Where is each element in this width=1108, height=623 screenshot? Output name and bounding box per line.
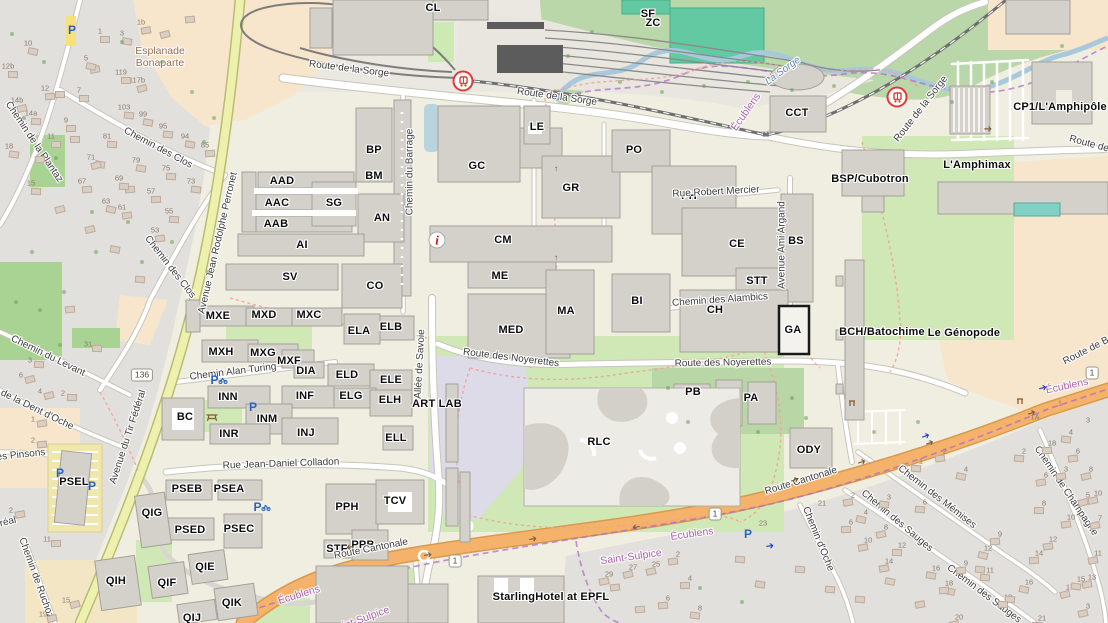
house-footprint	[645, 567, 656, 576]
boundary-label: Écublens	[1045, 376, 1090, 397]
tree-icon	[916, 420, 920, 424]
house-number: 117b	[129, 76, 145, 85]
oneway-arrow-icon: ➔	[789, 475, 800, 487]
tree-icon	[686, 420, 690, 424]
house-footprint	[911, 465, 921, 473]
tree-icon	[990, 80, 994, 84]
building-label: INF	[296, 390, 314, 402]
house-number: 1	[31, 415, 35, 424]
tree-icon	[566, 54, 570, 58]
building-label: STT	[746, 275, 767, 287]
house-footprint	[1080, 472, 1091, 481]
street-label: Chemin du Barrage	[405, 129, 416, 216]
building-label: AAB	[264, 218, 288, 230]
street-label: Route des Noyerettes	[462, 347, 559, 370]
tree-icon	[58, 343, 62, 347]
building-label: QIG	[142, 507, 163, 519]
building-label: MXG	[250, 347, 276, 359]
house-footprint	[45, 93, 55, 101]
tree-icon	[94, 250, 98, 254]
road-shield: 136	[131, 369, 153, 382]
building-label: ELL	[385, 432, 406, 444]
building-label: INN	[218, 391, 238, 403]
building-label: ELE	[380, 374, 402, 386]
house-footprint	[884, 577, 895, 586]
house-footprint	[191, 185, 202, 193]
boundary-label: Saint-Sulpice	[329, 604, 391, 623]
building-label: SV	[282, 271, 297, 283]
house-footprint	[27, 47, 38, 56]
cycle-arrow-icon: ➔	[1038, 383, 1049, 395]
house-footprint	[598, 577, 609, 586]
house-footprint	[935, 454, 946, 462]
street-label: Avenue Jean Rodolphe Perronet	[196, 171, 239, 315]
house-footprint	[1089, 521, 1100, 530]
house-footprint	[37, 440, 48, 448]
house-footprint	[855, 515, 866, 524]
street-label: Route Cantonale	[333, 536, 409, 561]
street-label: Chemin Alan Turing	[189, 361, 277, 383]
house-footprint	[635, 606, 646, 614]
house-footprint	[1056, 472, 1067, 480]
building-label: INJ	[297, 427, 315, 439]
tree-icon	[120, 40, 124, 44]
house-number: 4	[1069, 428, 1073, 437]
building-label: ODY	[797, 444, 821, 456]
house-number: 12b	[2, 62, 15, 71]
tree-icon	[38, 308, 42, 312]
house-footprint	[31, 118, 41, 126]
oneway-arrow-icon: ➔	[423, 550, 433, 561]
building-label: BP	[366, 144, 382, 156]
house-footprint	[925, 571, 936, 580]
tree-icon	[202, 140, 206, 144]
street-label: Route Cantonale	[764, 465, 839, 497]
house-footprint	[205, 150, 215, 158]
house-number: 61	[118, 203, 126, 212]
house-footprint	[70, 136, 80, 143]
building-label: CCT	[785, 107, 808, 119]
parking-icon: P	[249, 401, 257, 413]
house-number: 4	[864, 508, 868, 517]
house-footprint	[956, 567, 967, 575]
house-number: 9	[64, 116, 68, 125]
house-footprint	[136, 164, 147, 172]
house-number: 23	[759, 519, 767, 528]
house-number: 1A	[1030, 413, 1039, 422]
house-footprint	[185, 16, 196, 24]
road-shield: 1	[1086, 367, 1099, 380]
house-footprint	[1014, 455, 1025, 463]
house-footprint	[754, 580, 765, 589]
building-label: GC	[469, 160, 486, 172]
house-footprint	[90, 161, 101, 170]
house-footprint	[51, 141, 61, 148]
building-label: CP1/L'Amphipôle	[1013, 101, 1107, 113]
street-label: Chemin des Alambics	[672, 291, 769, 309]
house-footprint	[107, 141, 117, 149]
tree-icon	[666, 386, 670, 390]
street-label: Avenue du Tir Fédéral	[108, 389, 149, 486]
building-label: QIK	[222, 597, 242, 609]
house-footprint	[857, 543, 868, 552]
tree-icon	[746, 80, 750, 84]
building-label: ELB	[380, 321, 403, 333]
house-number: 21	[818, 499, 826, 508]
house-number: 15	[27, 179, 35, 188]
street-label: Avenue Ami Argand	[777, 201, 788, 289]
house-number: 16	[1025, 578, 1033, 587]
level-crossing-icon: ✕	[762, 130, 770, 141]
house-number: 69	[115, 174, 123, 183]
building-label: AI	[296, 239, 307, 251]
building-label: QIJ	[183, 612, 201, 623]
house-number: 57	[147, 187, 155, 196]
building-label: AAD	[270, 175, 294, 187]
street-label: Chemin de Ruchoz	[16, 536, 55, 620]
house-footprint	[51, 540, 61, 547]
building-label: BSP/Cubotron	[831, 173, 909, 185]
street-label: Route de B	[1061, 335, 1108, 368]
house-footprint	[841, 526, 851, 534]
building-label: PSEB	[172, 483, 203, 495]
water-label: La Sorge	[763, 55, 802, 88]
house-number: 11	[47, 132, 55, 141]
building-label: PB	[685, 386, 701, 398]
house-footprint	[34, 361, 44, 369]
parking-icon: P	[744, 528, 752, 540]
house-number: 7	[77, 86, 81, 95]
tree-icon	[740, 600, 744, 604]
parking-icon: P	[88, 480, 96, 492]
tree-icon	[804, 416, 808, 420]
tree-icon	[140, 260, 144, 264]
house-footprint	[69, 600, 80, 609]
building-label: CO	[367, 280, 384, 292]
building-label: MXC	[296, 309, 321, 321]
street-label: Rue Robert Mercier	[672, 184, 760, 200]
house-footprint	[122, 211, 133, 219]
house-number: 2	[1022, 447, 1026, 456]
house-footprint	[855, 596, 866, 604]
house-footprint	[955, 472, 966, 481]
gate-icon	[848, 394, 856, 412]
house-footprint	[24, 375, 35, 384]
house-footprint	[92, 345, 102, 352]
house-number: 14b	[11, 96, 24, 105]
house-number: 6	[923, 498, 927, 507]
house-number: 4	[964, 465, 968, 474]
street-label: Rue Jean-Daniel Colladon	[222, 456, 339, 471]
tree-icon	[10, 32, 14, 36]
house-number: 73	[187, 177, 195, 186]
building-label: BS	[788, 235, 804, 247]
house-number: 119	[115, 68, 127, 77]
house-footprint	[690, 611, 701, 619]
house-number: 16	[932, 564, 940, 573]
house-number: 3	[887, 493, 891, 502]
street-label: Route de la Sorge	[892, 74, 950, 144]
tree-icon	[702, 84, 706, 88]
house-footprint	[1061, 520, 1072, 528]
house-footprint	[1071, 582, 1082, 590]
building-label: ELG	[339, 390, 362, 402]
house-footprint	[16, 104, 27, 113]
map-canvas[interactable]: CLSFZCBPBMLEGCGRPOPHAADAACAABSGANAISVCOC…	[0, 0, 1108, 623]
street-label: Chemin du Levant	[9, 333, 87, 378]
building-label: ART LAB	[412, 398, 462, 410]
house-footprint	[1068, 454, 1079, 462]
picnic-icon	[206, 409, 219, 427]
cycle-arrow-icon: ➔	[920, 431, 931, 443]
house-footprint	[977, 551, 988, 560]
building-label: QIE	[195, 561, 215, 573]
house-number: 81	[103, 132, 111, 141]
house-footprint	[85, 62, 96, 71]
house-number: 8	[698, 604, 702, 613]
street-label: Chemin des Sauges	[859, 488, 935, 554]
tree-icon	[756, 430, 760, 434]
cycle-arrow-icon: ➔	[765, 541, 775, 552]
building-label: MXD	[251, 309, 276, 321]
house-footprint	[66, 125, 76, 132]
house-footprint	[914, 600, 925, 609]
house-footprint	[119, 183, 129, 191]
street-label: Route de	[1068, 133, 1108, 154]
building-label: PSED	[175, 524, 206, 536]
house-footprint	[124, 111, 135, 119]
building-label: MED	[498, 324, 523, 336]
house-footprint	[1043, 542, 1054, 550]
house-number: 4	[38, 387, 42, 396]
parking-icon: P	[56, 467, 64, 479]
building-label: ELD	[336, 369, 359, 381]
building-label: L'Amphimax	[943, 159, 1011, 171]
house-number: 71	[87, 153, 95, 162]
oneway-arrow-icon: ➔	[984, 125, 992, 135]
building-label: RLC	[587, 436, 610, 448]
building-label: MA	[557, 305, 575, 317]
building-label: Le Génopode	[928, 327, 1000, 339]
street-label: Route de la Sorge	[516, 86, 597, 108]
tree-icon	[160, 60, 164, 64]
house-footprint	[1029, 557, 1039, 565]
house-number: 3	[1086, 416, 1090, 425]
oneway-arrow-icon: ➔	[631, 520, 641, 531]
building-label: BM	[365, 170, 383, 182]
info-icon: i	[429, 232, 446, 249]
house-footprint	[9, 150, 20, 158]
building-label: LE	[530, 121, 544, 133]
tree-icon	[90, 210, 94, 214]
house-footprint	[1061, 435, 1072, 443]
house-footprint	[140, 26, 151, 35]
house-footprint	[82, 185, 93, 193]
house-number: 11	[43, 535, 51, 544]
place-label: Esplanade Bonaparte	[116, 45, 204, 69]
building-label: SF	[641, 8, 655, 20]
boundary-label: Écublens	[670, 525, 714, 543]
parking-bike-icon: P	[253, 501, 270, 513]
house-footprint	[105, 205, 116, 214]
house-footprint	[939, 587, 949, 595]
house-number: 55	[165, 207, 173, 216]
house-footprint	[136, 84, 147, 93]
house-footprint	[680, 582, 690, 589]
house-number: 31	[84, 340, 92, 349]
tree-icon	[62, 290, 66, 294]
house-number: 103	[118, 103, 131, 112]
house-footprint	[121, 77, 131, 84]
building-label: PSEA	[214, 483, 245, 495]
metro-station-icon	[887, 87, 908, 108]
boundary-label: Saint-Sulpice	[600, 547, 663, 567]
tree-icon	[212, 116, 216, 120]
house-footprint	[151, 196, 161, 204]
building-label: PA	[744, 392, 759, 404]
house-footprint	[8, 71, 18, 78]
house-footprint	[1087, 556, 1098, 565]
tree-icon	[22, 116, 26, 120]
house-footprint	[166, 173, 176, 181]
building-label: PPB	[351, 539, 374, 551]
street-label: es Pinsons	[0, 447, 46, 463]
parking-icon: P	[68, 24, 76, 36]
tree-icon	[126, 220, 130, 224]
building-label: MXF	[277, 355, 301, 367]
house-footprint	[14, 510, 25, 519]
building-label: CM	[494, 234, 512, 246]
house-footprint	[668, 557, 679, 565]
house-number: 1	[1058, 399, 1062, 408]
street-label: Chemin des Clos	[122, 125, 194, 170]
house-number: 1b	[137, 18, 145, 27]
house-footprint	[610, 583, 621, 591]
house-footprint	[892, 549, 902, 557]
house-footprint	[1077, 609, 1088, 618]
oneway-arrow-icon: ➔	[345, 540, 355, 551]
house-footprint	[879, 500, 890, 508]
building-label: QIF	[158, 577, 177, 589]
house-number: 12	[41, 84, 49, 93]
tree-icon	[872, 430, 876, 434]
house-footprint	[159, 30, 170, 39]
building-label: CL	[425, 2, 440, 14]
building-label: ELH	[379, 394, 402, 406]
house-number: 1	[919, 457, 923, 466]
building-label: PH	[681, 190, 697, 202]
building-label: GR	[563, 182, 580, 194]
house-footprint	[46, 614, 57, 623]
road-shield: 1	[709, 508, 722, 521]
house-number: 67	[78, 177, 86, 186]
house-number: 1	[98, 27, 102, 36]
house-footprint	[1034, 507, 1044, 514]
house-footprint	[1081, 580, 1092, 589]
house-footprint	[1059, 590, 1070, 599]
building-label: PSEC	[224, 523, 255, 535]
gate-icon	[1016, 392, 1024, 410]
house-footprint	[79, 95, 89, 102]
street-label: Allée de Savoie	[413, 329, 428, 399]
house-footprint	[825, 586, 836, 594]
house-footprint	[622, 570, 633, 579]
house-footprint	[135, 276, 146, 284]
parking-bike-icon: P	[210, 374, 227, 386]
house-footprint	[84, 225, 95, 234]
house-footprint	[998, 601, 1008, 608]
building-label: ME	[492, 270, 509, 282]
building-label: TCV	[384, 495, 407, 507]
oneway-arrow-icon: ➔	[528, 534, 538, 545]
house-number: 53	[151, 226, 159, 235]
road-shield: 1	[449, 555, 462, 568]
building-label: StarlingHotel at EPFL	[493, 591, 610, 603]
street-label: Route des Noyerettes	[675, 357, 772, 370]
house-footprint	[163, 130, 174, 138]
building-label: GA	[785, 324, 802, 336]
tree-icon	[618, 80, 622, 84]
house-number: 79	[132, 156, 140, 165]
house-footprint	[100, 36, 110, 43]
house-footprint	[31, 188, 41, 196]
house-footprint	[795, 566, 806, 574]
building-label: PSEL	[59, 476, 89, 488]
street-label: Chemin d'Oche	[800, 505, 836, 573]
metro-station-icon	[453, 71, 474, 92]
tree-icon	[14, 300, 18, 304]
building-label: ZC	[645, 17, 660, 29]
street-label: Route de la Sorge	[308, 59, 389, 80]
house-number: 75	[162, 164, 170, 173]
tree-icon	[698, 586, 702, 590]
house-footprint	[35, 156, 46, 164]
house-footprint	[67, 394, 77, 402]
tree-icon	[42, 60, 46, 64]
building-label: CH	[707, 304, 723, 316]
house-number: 18	[5, 142, 13, 151]
house-footprint	[43, 391, 54, 400]
tree-icon	[170, 240, 174, 244]
house-footprint	[975, 566, 986, 574]
house-number: 95	[159, 122, 167, 131]
house-footprint	[658, 601, 669, 609]
tree-icon	[30, 250, 34, 254]
house-footprint	[1042, 447, 1052, 455]
house-footprint	[915, 506, 926, 514]
building-label: DIA	[296, 365, 316, 377]
tree-icon	[54, 156, 58, 160]
building-label: ELA	[348, 325, 371, 337]
building-label: MXE	[206, 310, 230, 322]
building-label: MXH	[208, 346, 233, 358]
house-number: 11	[986, 566, 994, 575]
house-footprint	[875, 530, 886, 539]
building-label: BCH/Batochime	[839, 326, 925, 338]
boundary-label: Écublens	[729, 91, 764, 133]
house-footprint	[842, 498, 853, 507]
building-label: BC	[177, 411, 193, 423]
tree-icon	[590, 30, 594, 34]
house-number: 2	[9, 506, 13, 515]
tree-icon	[790, 88, 794, 92]
house-footprint	[65, 306, 76, 314]
tree-icon	[950, 100, 954, 104]
house-number: 6	[19, 371, 23, 380]
tree-icon	[660, 90, 664, 94]
footpath-arrow-icon: ↑	[554, 254, 558, 262]
house-footprint	[142, 118, 153, 127]
